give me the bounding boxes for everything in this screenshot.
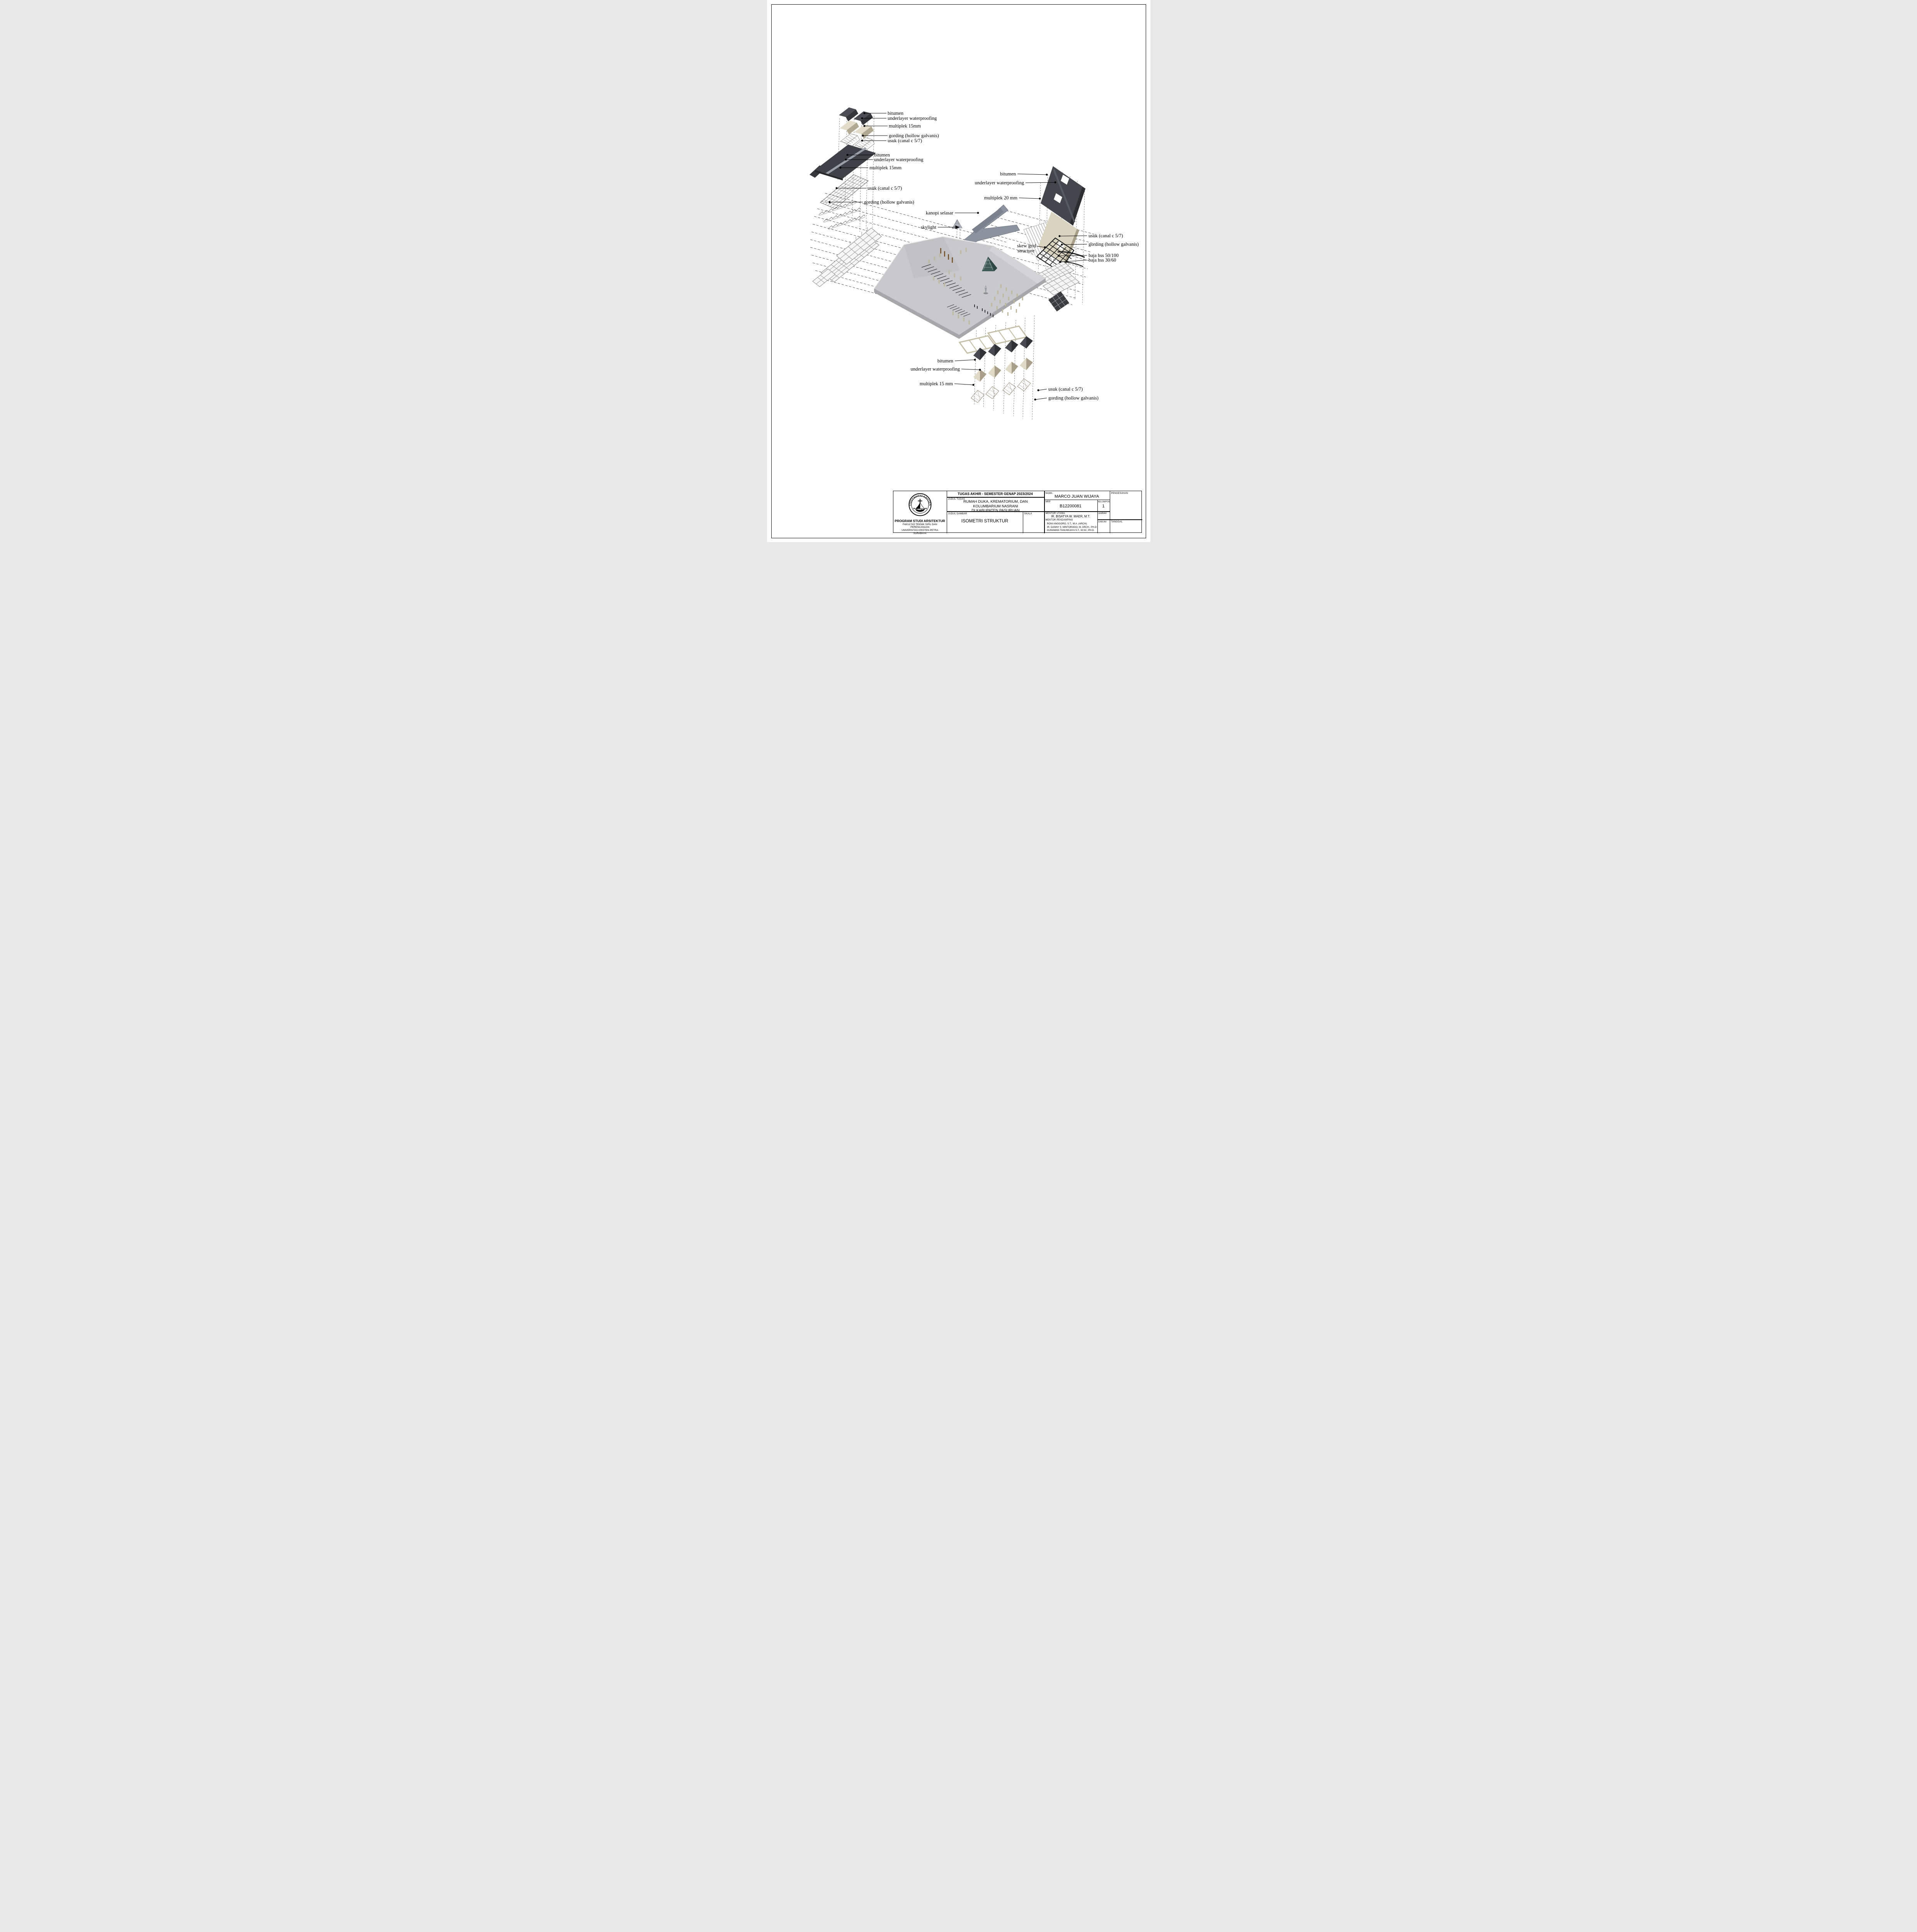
city-name: SURABAYA (893, 532, 947, 535)
label-usuk-right: usuk (canal c 5/7) (1089, 233, 1123, 238)
nama-value: MARCO JUAN WIJAYA (1044, 494, 1110, 499)
judul-gambar-label: JUDUL GAMBAR (948, 513, 967, 515)
label-usuk-left: usuk (canal c 5/7) (867, 185, 902, 191)
label-gording-right: gording (hollow galvanis) (1089, 241, 1139, 247)
mentor-pendamping-line2: IR. DANNY S. MINTOROGO, M. ARCH., PH.D (1047, 526, 1097, 529)
isometric-structure-drawing: bitumen underlayer waterproofing multipl… (767, 0, 1150, 542)
drawing-sheet: bitumen underlayer waterproofing multipl… (767, 0, 1150, 542)
sheet-header: TUGAS AKHIR - SEMESTER GENAP 2023/2024 (947, 491, 1043, 497)
multiplek-modules-bottom (973, 358, 1033, 382)
label-multiplek-left: multiplek 15mm (869, 165, 902, 170)
mentor-pendamping-line1: RONI ANGGORO, S.T., M.A. (ARCH) (1047, 522, 1097, 526)
tanggal-label: TANGGAL (1111, 521, 1123, 523)
nrp-value: B12200081 (1044, 504, 1097, 509)
kelompok-label: KELOMPOK (1098, 501, 1110, 503)
label-gording-bottom: gording (hollow galvanis) (1048, 395, 1099, 401)
label-skylight: skylight (920, 224, 936, 230)
faculty-name: FAKULTAS TEKNIK SIPIL DAN PERENCANAAN (893, 523, 947, 529)
gording-truss-left (819, 201, 865, 230)
title-block: UNIVERSITAS KRISTEN PETRA PROGRAM STUDI … (893, 491, 1142, 533)
label-gording-tl: gording (hollow galvanis) (889, 133, 939, 138)
mentor-pendamping-label: MENTOR PENDAMPING (1046, 519, 1073, 521)
pengesahan-label: PENGESAHAN (1111, 492, 1128, 495)
label-baja-hss-30-60: baja hss 30/60 (1089, 257, 1116, 263)
usuk-wireframe-left (820, 175, 868, 209)
university-name: UNIVERSITAS KRISTEN PETRA (893, 529, 947, 532)
lembar-label: LEMBAR (1098, 512, 1107, 515)
label-skew-grid-2: structure (1017, 248, 1034, 253)
university-logo: UNIVERSITAS KRISTEN PETRA (908, 493, 932, 517)
mentor-utama-value: IR. BISATYA W. MAER, M.T. (1044, 515, 1097, 518)
label-usuk-tl: usuk (canal c 5/7) (888, 138, 922, 143)
judul-tugas-line3: DI KABUPATEN PASURUAN (951, 509, 1040, 513)
label-bitumen-bottom: bitumen (937, 358, 954, 364)
label-underlayer-bottom: underlayer waterproofing (910, 366, 960, 372)
label-underlayer-tl: underlayer waterproofing (888, 116, 937, 121)
label-gording-left: gording (hollow galvanis) (864, 199, 914, 205)
jumlah-label: JUMLAH (1098, 521, 1107, 523)
roof-stack-left (810, 145, 876, 230)
label-kanopi-selasar: kanopi selasar (925, 210, 953, 216)
judul-tugas-line1: RUMAH DUKA, KREMATORIUM, DAN (951, 500, 1040, 504)
kelompok-value: 1 (1097, 504, 1110, 509)
institution-cell: UNIVERSITAS KRISTEN PETRA PROGRAM STUDI … (893, 491, 947, 533)
label-multiplek-tl: multiplek 15mm (889, 123, 921, 129)
gording-modules-bottom (971, 379, 1031, 403)
label-underlayer-left: underlayer waterproofing (874, 157, 924, 162)
nrp-label: NRP (1046, 501, 1051, 503)
roof-stack-top-left (839, 107, 874, 151)
judul-tugas-line2: KOLUMBARIUM NASRANI (951, 504, 1040, 509)
label-bitumen-tl: bitumen (888, 111, 904, 116)
dark-mesh-panel (1048, 291, 1069, 311)
label-multiplek-bottom: multiplek 15 mm (919, 381, 953, 386)
label-skew-grid-1: skew grid (1017, 243, 1036, 248)
label-usuk-bottom: usuk (canal c 5/7) (1048, 386, 1083, 392)
judul-gambar-value: ISOMETRI STRUKTUR (947, 519, 1022, 524)
mentor-pendamping-line3: GUNAWAN TANUWIJAYA S.T., M.SC, PH.D. (1047, 529, 1097, 532)
label-bitumen-right: bitumen (1000, 171, 1016, 177)
skala-label: SKALA (1024, 513, 1032, 515)
program-name: PROGRAM STUDI ARSITEKTUR (893, 519, 947, 523)
label-multiplek-right: multiplek 20 mm (984, 195, 1017, 201)
label-underlayer-right: underlayer waterproofing (975, 180, 1024, 185)
